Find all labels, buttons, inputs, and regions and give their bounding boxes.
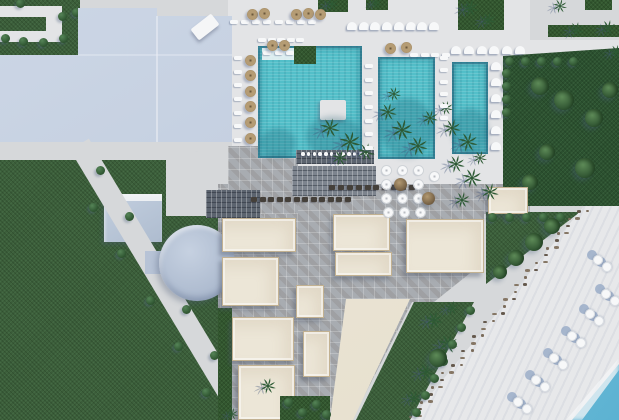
dining-table <box>416 208 425 217</box>
lawn-tree <box>585 109 603 127</box>
ne-garden-hedge <box>522 213 531 222</box>
shoreline-rocks <box>525 269 530 272</box>
bar-stool <box>347 152 351 156</box>
north-lounger-row <box>275 20 283 24</box>
lagoon-lounger-col <box>365 132 373 136</box>
terrace-table-row2 <box>365 185 371 190</box>
shoreline-rocks <box>429 393 433 396</box>
terrace-tree <box>394 178 407 191</box>
west-umbrella-col <box>245 55 256 66</box>
beach-umbrella-icon <box>602 262 612 272</box>
lawn-tree <box>531 77 549 95</box>
shoreline-rocks <box>460 364 463 367</box>
path-bush <box>202 388 211 397</box>
shoreline-rocks <box>503 298 508 301</box>
shoreline-rocks <box>523 283 527 286</box>
court-garden-bush <box>298 408 307 417</box>
ne-garden-tree <box>525 233 543 251</box>
north-umbrella2 <box>267 40 278 51</box>
shoreline-rocks <box>503 305 506 308</box>
hotel-roof-a4 <box>488 187 528 214</box>
terrace-table-row1 <box>260 197 266 202</box>
beach-umbrella-icon <box>558 360 568 370</box>
between-lounger-col <box>440 116 448 120</box>
north-lounger-row <box>286 20 294 24</box>
bar-stool <box>301 152 305 156</box>
shoreline-rocks <box>431 386 434 389</box>
cabana-row-east <box>464 46 474 54</box>
terrace-table-row1 <box>311 197 317 202</box>
dining-table <box>400 208 409 217</box>
mid-umbrella <box>385 43 396 54</box>
beach-umbrella-icon <box>594 316 604 326</box>
beach-umbrella-cluster <box>526 370 550 392</box>
hotel-roof-a1 <box>222 218 296 252</box>
plunge-cabana-col <box>491 94 501 102</box>
north-lounger-row <box>308 20 316 24</box>
west-umbrella-col <box>245 70 256 81</box>
north-lounger-row2 <box>258 38 266 42</box>
dining-table <box>382 180 391 189</box>
beach-umbrella-cluster <box>580 304 604 326</box>
bar-stool <box>364 152 368 156</box>
west-lounger-col <box>234 138 242 142</box>
dining-table <box>382 166 391 175</box>
between-lounger-col <box>440 56 448 60</box>
terrace-table-row1 <box>345 197 351 202</box>
between-lounger-col <box>440 92 448 96</box>
lawn-tree <box>575 158 595 178</box>
beach-umbrella-icon <box>522 404 532 414</box>
west-umbrella-col <box>245 117 256 128</box>
north-lounger-row <box>263 20 271 24</box>
hotel-roof-b2 <box>335 252 392 276</box>
lawn-hedge-west <box>502 95 511 104</box>
spa-glass-roof <box>206 190 260 218</box>
plunge-cabana-col <box>491 62 501 70</box>
terrace-tree <box>422 192 435 205</box>
se-garden-hedge <box>412 408 421 417</box>
path-bush <box>89 203 98 212</box>
terrace-table-row1 <box>302 197 308 202</box>
hedge-bush <box>19 37 28 46</box>
hotel-roof-c1 <box>232 317 294 361</box>
roof-seam <box>156 16 158 142</box>
path-bush <box>146 296 155 305</box>
cabana-row-east <box>489 46 499 54</box>
shoreline-rocks <box>557 232 560 235</box>
shoreline-rocks <box>555 239 559 242</box>
path-bush <box>174 342 183 351</box>
pool-shadow-2 <box>260 128 296 158</box>
court-garden-bush <box>322 410 331 419</box>
shoreline-rocks <box>483 321 487 324</box>
shoreline-rocks <box>449 371 454 374</box>
dining-table <box>398 166 407 175</box>
beach-umbrella-icon <box>567 331 577 341</box>
between-lounger-col <box>440 80 448 84</box>
bar-glass-roof <box>292 166 376 196</box>
shoreline-rocks <box>575 217 580 220</box>
court-garden-bush <box>312 400 321 409</box>
terrace-table-row1 <box>277 197 283 202</box>
hedge-bush <box>1 34 10 43</box>
pool-planter-2 <box>366 0 388 10</box>
beach-umbrella-icon <box>531 375 541 385</box>
dining-table <box>398 194 407 203</box>
terrace-table-row1 <box>285 197 291 202</box>
lagoon-lounger-col <box>365 64 373 68</box>
terrace-table-row1 <box>268 197 274 202</box>
shoreline-rocks <box>546 247 549 250</box>
path-bush <box>125 212 134 221</box>
bar-stool <box>353 152 357 156</box>
north-umbrella <box>247 9 258 20</box>
cabana-row-east <box>477 46 487 54</box>
beach-umbrella-cluster <box>562 326 586 348</box>
west-lounger-col <box>234 56 242 60</box>
lawn-hedge-top <box>505 57 514 66</box>
west-umbrella-col <box>245 101 256 112</box>
mid-umbrella <box>401 42 412 53</box>
se-garden-hedge <box>430 374 439 383</box>
dining-table <box>384 208 393 217</box>
cabana-row <box>406 22 416 30</box>
beach-umbrella-cluster <box>596 284 619 306</box>
terrace-table-row1 <box>319 197 325 202</box>
shoreline-rocks <box>514 291 517 294</box>
cabana-row <box>429 22 439 30</box>
beach-umbrella-icon <box>585 309 595 319</box>
lawn-hedge-west <box>502 82 511 91</box>
north-lounger-row <box>297 20 305 24</box>
hotel-roof-b1 <box>222 257 279 306</box>
west-umbrella-col <box>245 133 256 144</box>
lagoon-lounger-col <box>365 91 373 95</box>
terrace-table-row1 <box>336 197 342 202</box>
north-lounger-row <box>241 20 249 24</box>
beach-umbrella-cluster <box>508 392 532 414</box>
pool-planter-island <box>294 46 316 64</box>
terrace-table-row2 <box>347 185 353 190</box>
bar-stool <box>324 152 328 156</box>
cabana-row <box>370 22 380 30</box>
ne-garden-tree <box>544 218 560 234</box>
path-bush <box>117 249 126 258</box>
west-lounger-col <box>234 97 242 101</box>
beach-umbrella-icon <box>513 397 523 407</box>
beach-umbrella-icon <box>540 382 550 392</box>
hotel-roof-b3 <box>296 285 324 318</box>
cabana-row-east <box>451 46 461 54</box>
se-garden-hedge <box>466 306 475 315</box>
lawn-hedge-west <box>502 108 511 117</box>
lawn-tree <box>539 144 555 160</box>
hedge-bush <box>16 0 25 8</box>
ne-garden-tree <box>493 265 507 279</box>
lawn-hedge-west <box>502 69 511 78</box>
hotel-roof-a2 <box>333 214 390 251</box>
ne-garden-hedge <box>505 213 514 222</box>
shoreline-rocks <box>586 210 589 213</box>
lawn-hedge-top <box>569 57 578 66</box>
terrace-table-row2 <box>329 185 335 190</box>
hedge-strip-ne2 <box>548 25 619 37</box>
pool-planter-3 <box>458 0 504 30</box>
dining-table <box>414 180 423 189</box>
plunge-cabana-col <box>491 110 501 118</box>
cabana-row <box>417 22 427 30</box>
terrace-table-row2 <box>373 185 379 190</box>
resort-aerial-rendering: 0">0">0">0">0">0">0">0">0">0">0">0">0">0… <box>0 0 619 420</box>
beach-umbrella-icon <box>610 296 619 306</box>
cabana-row-east <box>502 46 512 54</box>
north-umbrella <box>259 8 270 19</box>
court-garden-bush <box>284 398 293 407</box>
cabana-row <box>394 22 404 30</box>
west-umbrella-col <box>245 86 256 97</box>
hotel-roof-c2 <box>303 331 330 377</box>
north-umbrella <box>303 8 314 19</box>
shoreline-rocks <box>460 357 465 360</box>
lawn-hedge-top <box>537 57 546 66</box>
dining-table <box>414 166 423 175</box>
terrace-table-row2 <box>338 185 344 190</box>
north-umbrella <box>291 9 302 20</box>
pool-shadow-3 <box>380 98 434 158</box>
north-umbrella2 <box>279 40 290 51</box>
se-garden-tree <box>429 349 447 367</box>
lawn-hedge-top <box>521 57 530 66</box>
hedge-bush <box>39 38 48 47</box>
se-garden-hedge <box>457 323 466 332</box>
hedge-bush <box>59 34 68 43</box>
ne-garden-hedge <box>488 213 497 222</box>
path-bush <box>182 305 191 314</box>
se-garden-hedge <box>448 340 457 349</box>
between-lounger-col <box>440 68 448 72</box>
lagoon-lounger-col <box>365 105 373 109</box>
shoreline-rocks <box>471 342 476 345</box>
lagoon-lounger-col <box>365 78 373 82</box>
hotel-hedge-west <box>218 308 232 420</box>
lagoon-lounger-col <box>365 146 373 150</box>
shoreline-rocks <box>451 364 455 367</box>
west-lounger-col <box>234 124 242 128</box>
shoreline-rocks <box>501 312 505 315</box>
pool-shadow-4 <box>452 108 488 154</box>
shoreline-rocks <box>471 349 474 352</box>
terrace-table-row2 <box>356 185 362 190</box>
beach-umbrella-icon <box>549 353 559 363</box>
bar-stool <box>336 152 340 156</box>
terrace-table-row1 <box>294 197 300 202</box>
shelf-lounger <box>286 51 294 55</box>
dining-table <box>382 194 391 203</box>
lagoon-lounger-col <box>365 119 373 123</box>
shoreline-rocks <box>428 400 433 403</box>
dining-table <box>430 172 439 181</box>
bar-stool <box>313 152 317 156</box>
between-lounger-col <box>440 104 448 108</box>
lawn-tree <box>602 82 618 98</box>
terrace-table-row1 <box>328 197 334 202</box>
beach-umbrella-cluster <box>588 250 612 272</box>
cabana-row <box>359 22 369 30</box>
terrace-table-row1 <box>251 197 257 202</box>
west-lounger-col <box>234 83 242 87</box>
plunge-cabana-col <box>491 126 501 134</box>
lounger-row-mid <box>410 53 418 57</box>
beach-umbrella-icon <box>593 255 603 265</box>
plunge-cabana-col <box>491 142 501 150</box>
beach-umbrella-icon <box>601 289 611 299</box>
shoreline-rocks <box>420 401 423 404</box>
lounger-row-mid <box>421 53 429 57</box>
roof-seam2 <box>78 54 232 56</box>
ne-garden-tree <box>508 250 524 266</box>
beach-umbrella-cluster <box>544 348 568 370</box>
cabana-row <box>347 22 357 30</box>
hedge-bush <box>58 12 67 21</box>
north-lounger-row2 <box>296 38 304 42</box>
north-lounger-row <box>230 20 238 24</box>
lounger-row-mid <box>431 53 439 57</box>
hedge-strip-ne1 <box>585 0 612 10</box>
bar-stool <box>359 152 363 156</box>
shelf-lounger <box>275 51 283 55</box>
hotel-roof-a3 <box>406 219 484 273</box>
north-lounger-row <box>252 20 260 24</box>
path-bush <box>96 166 105 175</box>
bar-stool <box>318 152 322 156</box>
shelf-lounger <box>263 51 271 55</box>
north-umbrella <box>315 9 326 20</box>
shoreline-rocks <box>554 246 559 249</box>
lawn-tree <box>554 90 574 110</box>
lawn-hedge-top <box>553 57 562 66</box>
shoreline-rocks <box>472 335 476 338</box>
beach-umbrella-icon <box>576 338 586 348</box>
se-garden-hedge <box>421 391 430 400</box>
bar-stool <box>341 152 345 156</box>
shoreline-rocks <box>577 210 581 213</box>
shoreline-rocks <box>534 269 538 272</box>
plunge-cabana-col <box>491 78 501 86</box>
west-lounger-col <box>234 70 242 74</box>
cabana-row <box>382 22 392 30</box>
west-lounger-col <box>234 111 242 115</box>
cabana-row-east <box>515 46 525 54</box>
